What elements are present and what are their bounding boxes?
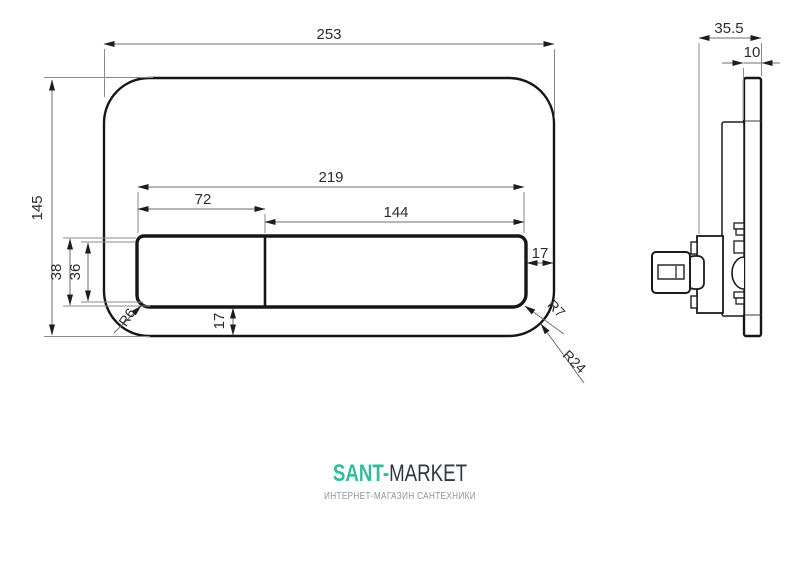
logo-accent-text: SANT- [333, 460, 389, 487]
side-plunger-slot [658, 265, 684, 279]
dim-bottom-gap: 17 [211, 313, 228, 330]
dim-button-height-outer: 38 [48, 264, 65, 281]
mounting-clip [734, 241, 744, 253]
store-logo: SANT-MARKET [88, 460, 712, 488]
dim-overall-width: 253 [316, 26, 341, 43]
dim-buttons-width: 219 [318, 169, 343, 186]
drawing-canvas: 253 145 219 72 144 17 17 38 36 R6 R7 R24 [0, 0, 800, 450]
mounting-clip [736, 298, 744, 304]
button-panel-outline [137, 236, 526, 307]
dim-thickness: 10 [744, 44, 761, 61]
mounting-clip [734, 223, 744, 229]
mounting-clip [734, 292, 744, 298]
side-housing-tab [691, 296, 697, 308]
store-logo-block: SANT-MARKET ИНТЕРНЕТ-МАГАЗИН САНТЕХНИКИ [0, 460, 800, 502]
radius-label-r24: R24 [560, 347, 590, 377]
dim-large-button-width: 144 [383, 204, 408, 221]
logo-rest-text: MARKET [389, 460, 467, 487]
side-plate-profile [744, 78, 761, 336]
dim-small-button-width: 72 [195, 191, 212, 208]
dim-depth: 35.5 [714, 20, 743, 37]
dim-right-gap: 17 [532, 245, 549, 262]
dim-overall-height: 145 [29, 195, 46, 220]
side-housing-tab [691, 242, 697, 254]
dim-button-height-inner: 36 [67, 264, 84, 281]
store-tagline: ИНТЕРНЕТ-МАГАЗИН САНТЕХНИКИ [72, 491, 728, 502]
mounting-clip [736, 229, 744, 235]
technical-drawing: 253 145 219 72 144 17 17 38 36 R6 R7 R24 [0, 0, 800, 455]
